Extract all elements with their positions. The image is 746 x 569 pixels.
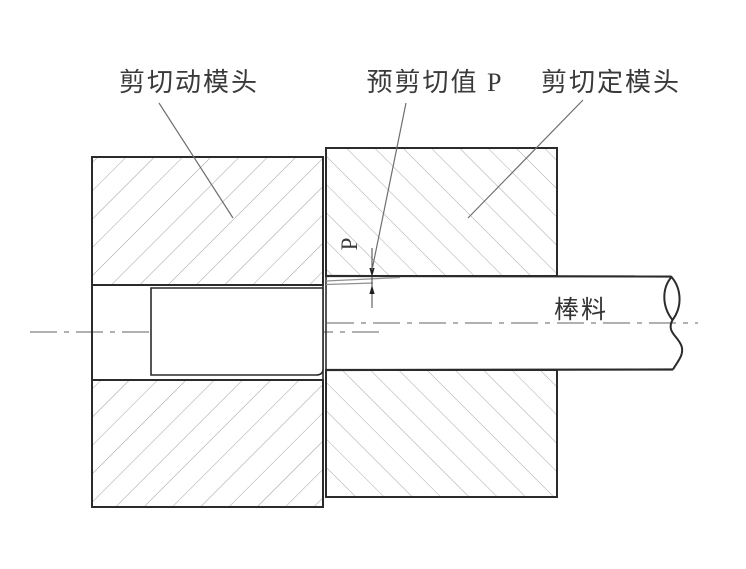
bar-break-tail [671,320,683,370]
preshear-die-diagram: P 剪切动模头 预剪切值 P 剪切定模头 棒料 [0,0,746,569]
shear-taper-line-lower [326,283,373,285]
fixed-die-upper-section [326,148,557,276]
dimension-p-label: P [337,238,362,251]
moving-die-upper-section [92,157,323,285]
shear-taper-line-upper [326,278,400,282]
fixed-die-lower-section [326,370,557,497]
label-fixed-die: 剪切定模头 [541,68,681,97]
dimension-p-arrow-up [369,285,374,294]
bar-end-in-moving-die [151,288,323,375]
label-preshear-value: 预剪切值 P [367,68,504,97]
bar-break-lens [664,277,679,320]
moving-die-lower-section [92,380,323,507]
label-moving-die: 剪切动模头 [119,68,259,97]
figure-canvas: P 剪切动模头 预剪切值 P 剪切定模头 棒料 [0,0,746,569]
label-bar-stock: 棒料 [554,296,608,324]
